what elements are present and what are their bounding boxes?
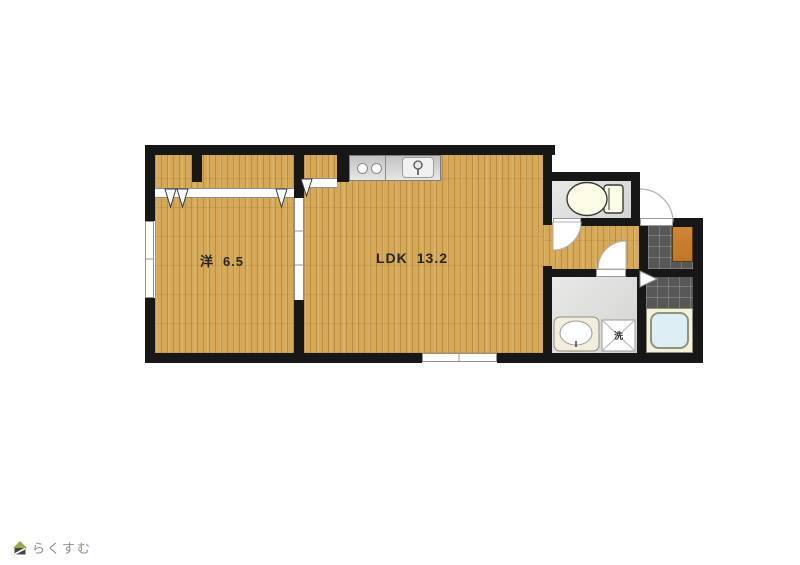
ldk-name: LDK	[376, 250, 408, 266]
sliding-door-western-ldk	[294, 198, 304, 300]
site-logo-text: らくすむ	[32, 538, 92, 557]
washroom-door-opening	[596, 269, 626, 277]
wall-segment	[145, 145, 555, 155]
site-logo: らくすむ	[12, 538, 92, 557]
wall-segment	[581, 218, 640, 226]
partition-wall	[294, 145, 304, 198]
western-room-area: 6.5	[223, 254, 244, 269]
wall-segment	[543, 269, 596, 277]
window-bottom	[422, 353, 497, 362]
kitchen-counter-divider	[385, 155, 386, 181]
wall-segment	[626, 269, 646, 277]
wall-segment	[545, 172, 640, 181]
house-logo-icon	[12, 540, 28, 556]
western-room-label: 洋6.5	[162, 251, 282, 270]
floorplan-page: 洋6.5 LDK13.2 洗 らくすむ	[0, 0, 800, 565]
western-room-name: 洋	[200, 254, 214, 269]
wall-segment	[637, 277, 646, 353]
wall-segment	[145, 353, 422, 363]
partition-wall	[294, 300, 304, 353]
toilet-door-leaf	[553, 218, 581, 226]
wall-segment	[145, 145, 155, 221]
entry-door-leaf	[640, 218, 673, 226]
wall-segment	[693, 218, 703, 363]
wall-segment	[543, 145, 552, 225]
shoe-cabinet	[672, 226, 693, 262]
bathtub-icon	[650, 312, 689, 349]
stove-burners-icon	[371, 163, 382, 174]
wall-segment	[639, 226, 648, 269]
wall-segment	[497, 353, 703, 363]
kitchen-sink-icon	[402, 157, 434, 178]
washing-machine-label: 洗	[602, 329, 635, 342]
wall-segment	[639, 269, 703, 277]
kitchen-wall-stub	[337, 145, 349, 182]
window-left	[145, 221, 154, 298]
closet-divider-wall	[192, 145, 202, 182]
wall-segment	[673, 218, 703, 227]
toilet-room-floor	[552, 180, 631, 218]
ldk-label: LDK13.2	[352, 250, 472, 266]
hallway-floor	[543, 222, 640, 270]
ldk-area: 13.2	[417, 250, 448, 266]
closet-folding-door	[155, 188, 294, 198]
closet-folding-door	[304, 178, 337, 188]
stove-burners-icon	[357, 163, 368, 174]
wall-segment	[543, 266, 552, 353]
